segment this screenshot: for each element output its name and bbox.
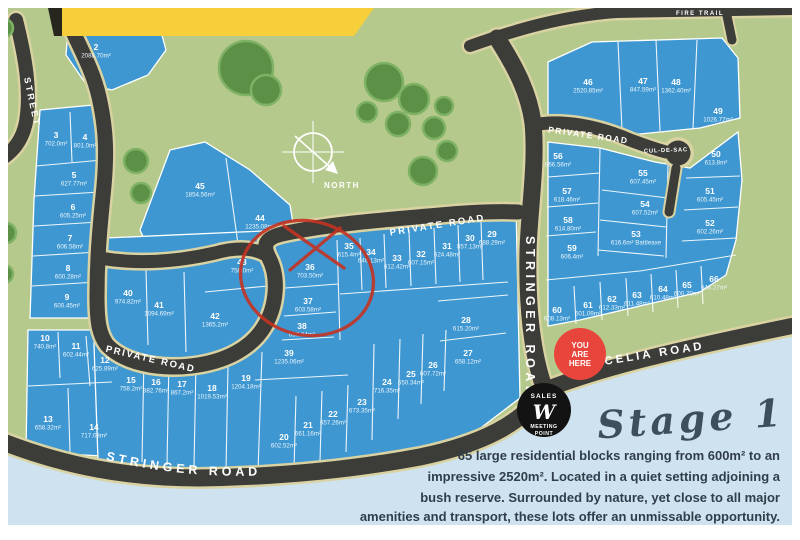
lot-22-area: 657.26m² xyxy=(320,420,346,427)
lot-32-number: 32 xyxy=(416,249,426,259)
lot-49-number: 49 xyxy=(713,106,723,116)
tree-icon xyxy=(423,117,445,139)
lot-31-number: 31 xyxy=(442,241,452,251)
lot-4-area: 801.0m² xyxy=(74,143,97,150)
lot-61-area: 601.09m² xyxy=(575,311,601,318)
lot-19-number: 19 xyxy=(241,373,251,383)
lot-37-area: 603.58m² xyxy=(295,307,321,314)
sales-meeting-point-marker: SALES W MEETING POINT xyxy=(517,383,571,437)
lot-64-number: 64 xyxy=(658,284,668,294)
lot-49-area: 1026.77m² xyxy=(703,117,733,124)
tree-icon xyxy=(365,63,403,101)
lot-11-number: 11 xyxy=(72,341,81,351)
lot-24-number: 24 xyxy=(382,377,392,387)
lot-3-area: 702.0m² xyxy=(45,141,68,148)
lot-25-number: 25 xyxy=(406,369,416,379)
lot-25-area: 650.34m² xyxy=(398,380,424,387)
lot-12-number: 12 xyxy=(100,355,110,365)
lot-10-number: 10 xyxy=(40,333,50,343)
description-line4: amenities and transport, these lots offe… xyxy=(360,509,780,524)
lot-55-area: 607.45m² xyxy=(630,179,656,186)
lot-51-number: 51 xyxy=(705,186,715,196)
lot-27-number: 27 xyxy=(463,348,473,358)
tree-icon xyxy=(357,102,377,122)
lot-36-number: 36 xyxy=(305,262,315,272)
road-fire-trail-stub xyxy=(726,11,732,40)
lot-26-number: 26 xyxy=(428,360,438,370)
lot-13-number: 13 xyxy=(43,414,53,424)
lot-23-number: 23 xyxy=(357,397,367,407)
lot-33-number: 33 xyxy=(392,253,402,263)
lot-46-number: 46 xyxy=(583,77,593,87)
lot-61-number: 61 xyxy=(583,300,593,310)
lot-22-number: 22 xyxy=(328,409,338,419)
fire-trail-label: FIRE TRAIL xyxy=(676,11,724,17)
lot-40-area: 974.82m² xyxy=(115,299,141,306)
lot-2-number: 2 xyxy=(94,42,99,52)
lot-58-number: 58 xyxy=(563,215,573,225)
lot-21-area: 661.16m² xyxy=(295,431,321,438)
lot-39-number: 39 xyxy=(284,348,294,358)
lot-50-area: 613.8m² xyxy=(705,160,728,167)
lot-3-number: 3 xyxy=(54,130,59,140)
lot-19-area: 1204.18m² xyxy=(231,384,261,391)
lot-5-area: 627.77m² xyxy=(61,181,87,188)
lot-8-number: 8 xyxy=(66,263,71,273)
meeting-label: MEETING xyxy=(530,424,557,430)
lot-53-area: 616.6m² Battleaxe xyxy=(611,240,662,247)
lot-27-area: 658.12m² xyxy=(455,359,481,366)
lot-59-number: 59 xyxy=(567,243,577,253)
description-line3: bush reserve. Surrounded by nature, yet … xyxy=(420,490,780,505)
lot-17-number: 17 xyxy=(177,379,187,389)
lot-42-number: 42 xyxy=(210,311,220,321)
lot-6-area: 605.25m² xyxy=(60,213,86,220)
lot-17-area: 867.2m² xyxy=(171,390,194,397)
lot-37-number: 37 xyxy=(303,296,313,306)
estate-map: NORTH STREET PRIVATE ROAD PRIVATE ROAD P… xyxy=(0,0,800,540)
lot-42-area: 1365.2m² xyxy=(202,322,228,329)
sales-label: SALES xyxy=(531,393,558,400)
lot-45-area: 1854.56m² xyxy=(185,192,215,199)
lot-30-number: 30 xyxy=(465,233,475,243)
lot-29-number: 29 xyxy=(487,229,497,239)
lot-21-number: 21 xyxy=(303,420,313,430)
lot-9-number: 9 xyxy=(65,292,70,302)
lot-28-number: 28 xyxy=(461,315,471,325)
lot-28-area: 615.20m² xyxy=(453,326,479,333)
lot-40-number: 40 xyxy=(123,288,133,298)
lot-66-number: 66 xyxy=(709,274,719,284)
lot-31-area: 624.48m² xyxy=(434,252,460,259)
lot-16-area: 882.76m² xyxy=(143,388,169,395)
lot-62-number: 62 xyxy=(607,294,617,304)
lot-46-area: 2520.85m² xyxy=(573,88,603,95)
you-are-here-marker: YOU ARE HERE xyxy=(554,328,606,380)
lot-30-area: 857.13m² xyxy=(457,244,483,251)
lot-65-area: 600.70m² xyxy=(674,291,700,298)
lot-54-number: 54 xyxy=(640,199,650,209)
lot-32-area: 607.15m² xyxy=(408,260,434,267)
tree-icon xyxy=(131,183,151,203)
description-line1: 65 large residential blocks ranging from… xyxy=(458,448,780,463)
description-line2: impressive 2520m². Located in a quiet se… xyxy=(427,469,780,484)
lot-5-number: 5 xyxy=(72,170,77,180)
lot-56-number: 56 xyxy=(553,151,563,161)
lot-41-number: 41 xyxy=(154,300,164,310)
lot-48-area: 1362.40m² xyxy=(661,88,691,95)
lot-65-number: 65 xyxy=(682,280,692,290)
lot-63-number: 63 xyxy=(632,290,642,300)
tree-icon xyxy=(399,84,429,114)
lot-8-area: 600.28m² xyxy=(55,274,81,281)
lot-9-area: 600.45m² xyxy=(54,303,80,310)
lot-4-number: 4 xyxy=(83,132,88,142)
lot-60-area: 608.13m² xyxy=(544,316,570,323)
lot-15-area: 758.2m² xyxy=(120,386,143,393)
map-svg: NORTH STREET PRIVATE ROAD PRIVATE ROAD P… xyxy=(0,0,800,540)
lot-53-number: 53 xyxy=(631,229,641,239)
lot-20-area: 602.52m² xyxy=(271,443,297,450)
w-logo-icon: W xyxy=(533,400,558,424)
tree-icon xyxy=(124,149,148,173)
lot-10-area: 740.8m² xyxy=(34,344,57,351)
tree-icon xyxy=(386,112,410,136)
lot-33-area: 612.42m² xyxy=(384,264,410,271)
lot-24-area: 716.35m² xyxy=(374,388,400,395)
lot-64-area: 610.48m² xyxy=(650,295,676,302)
lot-58-area: 614.80m² xyxy=(555,226,581,233)
lot-18-number: 18 xyxy=(207,383,217,393)
lot-60-number: 60 xyxy=(552,305,562,315)
lot-57-area: 618.46m² xyxy=(554,197,580,204)
lot-7-area: 606.58m² xyxy=(57,244,83,251)
lot-56-area: 866.56m² xyxy=(545,162,571,169)
yellow-banner xyxy=(48,8,374,36)
tree-icon xyxy=(435,97,453,115)
lot-52-number: 52 xyxy=(705,218,715,228)
lot-47-number: 47 xyxy=(638,76,648,86)
lot-20-number: 20 xyxy=(279,432,289,442)
lot-66-area: 646.27m² xyxy=(701,285,727,292)
lot-44-number: 44 xyxy=(255,213,265,223)
lot-39-area: 1235.06m² xyxy=(274,359,304,366)
lot-15-number: 15 xyxy=(126,375,136,385)
lot-63-area: 611.48m² xyxy=(624,301,650,308)
lot-18-area: 1019.53m² xyxy=(197,394,227,401)
lot-62-area: 612.33m² xyxy=(599,305,625,312)
north-label: NORTH xyxy=(324,181,360,190)
lot-48-number: 48 xyxy=(671,77,681,87)
lot-59-area: 606.4m² xyxy=(561,254,584,261)
lot-12-area: 625.89m² xyxy=(92,366,118,373)
lot-50-number: 50 xyxy=(711,149,721,159)
lot-57-number: 57 xyxy=(562,186,572,196)
lot-51-area: 605.45m² xyxy=(697,197,723,204)
lot-14-area: 717.03m² xyxy=(81,433,107,440)
lot-35-area: 615.4m² xyxy=(338,252,361,259)
lot-54-area: 607.52m² xyxy=(632,210,658,217)
lot-14-number: 14 xyxy=(89,422,99,432)
lot-52-area: 602.26m² xyxy=(697,229,723,236)
tree-icon xyxy=(251,75,281,105)
you-are-here-line2: ARE xyxy=(572,350,590,359)
lot-26-area: 607.72m² xyxy=(420,371,446,378)
lot-36-area: 703.50m² xyxy=(297,273,323,280)
banner-body xyxy=(62,8,374,36)
lot-6-number: 6 xyxy=(71,202,76,212)
lot-13-area: 658.32m² xyxy=(35,425,61,432)
tree-icon xyxy=(437,141,457,161)
lot-7-number: 7 xyxy=(68,233,73,243)
you-are-here-line1: YOU xyxy=(571,341,589,350)
stringer-road-vertical-label: STRINGER ROAD xyxy=(523,236,537,399)
lot-23-area: 673.35m² xyxy=(349,408,375,415)
lot-16-number: 16 xyxy=(151,377,161,387)
lot-47-area: 847.59m² xyxy=(630,87,656,94)
lot-38-number: 38 xyxy=(297,321,307,331)
lot-35-number: 35 xyxy=(344,241,354,251)
lot-11-area: 602.44m² xyxy=(63,352,89,359)
point-label: POINT xyxy=(535,431,554,437)
tree-icon xyxy=(409,157,437,185)
you-are-here-line3: HERE xyxy=(569,359,592,368)
lot-2-area: 2088.70m² xyxy=(81,53,111,60)
lot-55-number: 55 xyxy=(638,168,648,178)
lot-45-number: 45 xyxy=(195,181,205,191)
lot-41-area: 1094.69m² xyxy=(144,311,174,318)
